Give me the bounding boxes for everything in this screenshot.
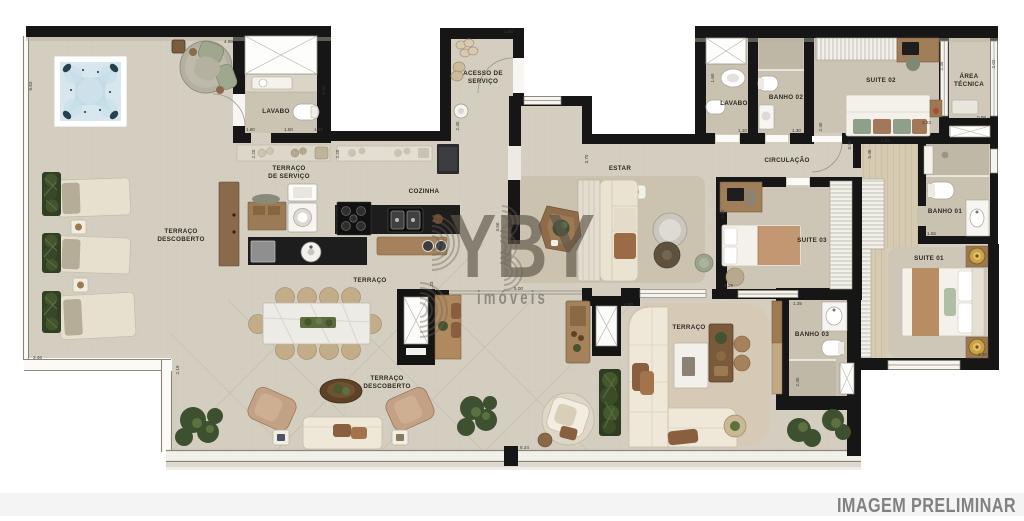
svg-text:4.98: 4.98 bbox=[224, 39, 233, 44]
svg-text:1.55: 1.55 bbox=[927, 231, 936, 236]
svg-text:1.97: 1.97 bbox=[314, 127, 323, 132]
svg-text:2.35: 2.35 bbox=[939, 61, 944, 70]
svg-text:1.80: 1.80 bbox=[246, 127, 255, 132]
svg-text:TERRAÇO: TERRAÇO bbox=[164, 228, 197, 235]
svg-text:3.30: 3.30 bbox=[978, 352, 987, 357]
svg-text:2.40: 2.40 bbox=[818, 122, 823, 131]
svg-text:2.20: 2.20 bbox=[251, 149, 256, 158]
svg-text:1.23: 1.23 bbox=[429, 281, 434, 290]
svg-text:3.46: 3.46 bbox=[33, 355, 42, 360]
svg-text:1.52: 1.52 bbox=[881, 138, 890, 143]
svg-text:3.29: 3.29 bbox=[724, 283, 733, 288]
svg-text:4.50: 4.50 bbox=[495, 222, 500, 231]
svg-text:ÁREA: ÁREA bbox=[959, 71, 978, 80]
svg-text:BANHO 01: BANHO 01 bbox=[928, 208, 962, 215]
svg-text:SUITE 01: SUITE 01 bbox=[914, 255, 944, 262]
svg-text:1.10: 1.10 bbox=[738, 128, 747, 133]
svg-text:LAVABO: LAVABO bbox=[720, 100, 747, 107]
svg-text:LAVABO: LAVABO bbox=[262, 108, 289, 115]
svg-text:COZINHA: COZINHA bbox=[409, 188, 440, 195]
svg-text:ESTAR: ESTAR bbox=[609, 165, 632, 172]
svg-text:2.40: 2.40 bbox=[455, 121, 460, 130]
svg-text:2.50: 2.50 bbox=[720, 209, 725, 218]
svg-text:1.60: 1.60 bbox=[710, 73, 715, 82]
svg-text:TERRAÇO: TERRAÇO bbox=[272, 165, 305, 172]
svg-text:imóveis: imóveis bbox=[477, 288, 548, 309]
svg-text:1.30: 1.30 bbox=[792, 128, 801, 133]
svg-text:TERRAÇO: TERRAÇO bbox=[370, 375, 403, 382]
svg-text:4.00: 4.00 bbox=[624, 302, 633, 307]
svg-text:2.30: 2.30 bbox=[795, 377, 800, 386]
svg-text:0.90: 0.90 bbox=[847, 140, 852, 149]
svg-text:1.35: 1.35 bbox=[793, 301, 802, 306]
svg-text:8.24: 8.24 bbox=[520, 445, 529, 450]
svg-text:DESCOBERTO: DESCOBERTO bbox=[363, 383, 410, 390]
svg-text:0.98: 0.98 bbox=[977, 115, 986, 120]
svg-text:5.00: 5.00 bbox=[514, 286, 523, 291]
svg-text:TÉCNICA: TÉCNICA bbox=[954, 79, 984, 88]
svg-text:5.46: 5.46 bbox=[867, 149, 872, 158]
svg-text:IMAGEM PRELIMINAR: IMAGEM PRELIMINAR bbox=[837, 495, 1016, 516]
svg-text:3.70: 3.70 bbox=[584, 154, 589, 163]
svg-text:1.55: 1.55 bbox=[504, 29, 513, 34]
svg-text:BANHO 02: BANHO 02 bbox=[769, 94, 803, 101]
svg-text:SERVIÇO: SERVIÇO bbox=[468, 78, 498, 85]
svg-text:ACESSO DE: ACESSO DE bbox=[463, 70, 503, 77]
svg-text:DESCOBERTO: DESCOBERTO bbox=[157, 236, 204, 243]
svg-text:CIRCULAÇÃO: CIRCULAÇÃO bbox=[764, 155, 809, 164]
svg-text:SUITE 03: SUITE 03 bbox=[797, 237, 827, 244]
svg-text:2.02: 2.02 bbox=[991, 59, 996, 68]
svg-text:2.19: 2.19 bbox=[175, 365, 180, 374]
svg-text:3.33: 3.33 bbox=[922, 120, 931, 125]
svg-text:BANHO 03: BANHO 03 bbox=[795, 331, 829, 338]
svg-text:DE SERVIÇO: DE SERVIÇO bbox=[268, 173, 310, 180]
svg-text:1.50: 1.50 bbox=[284, 127, 293, 132]
svg-text:TERRAÇO: TERRAÇO bbox=[672, 324, 705, 331]
svg-text:1.42: 1.42 bbox=[321, 85, 326, 94]
svg-text:SUITE 02: SUITE 02 bbox=[866, 77, 896, 84]
svg-text:YBY: YBY bbox=[449, 197, 595, 297]
svg-text:6.63: 6.63 bbox=[28, 81, 33, 90]
svg-text:2.20: 2.20 bbox=[335, 149, 340, 158]
svg-text:TERRAÇO: TERRAÇO bbox=[353, 277, 386, 284]
